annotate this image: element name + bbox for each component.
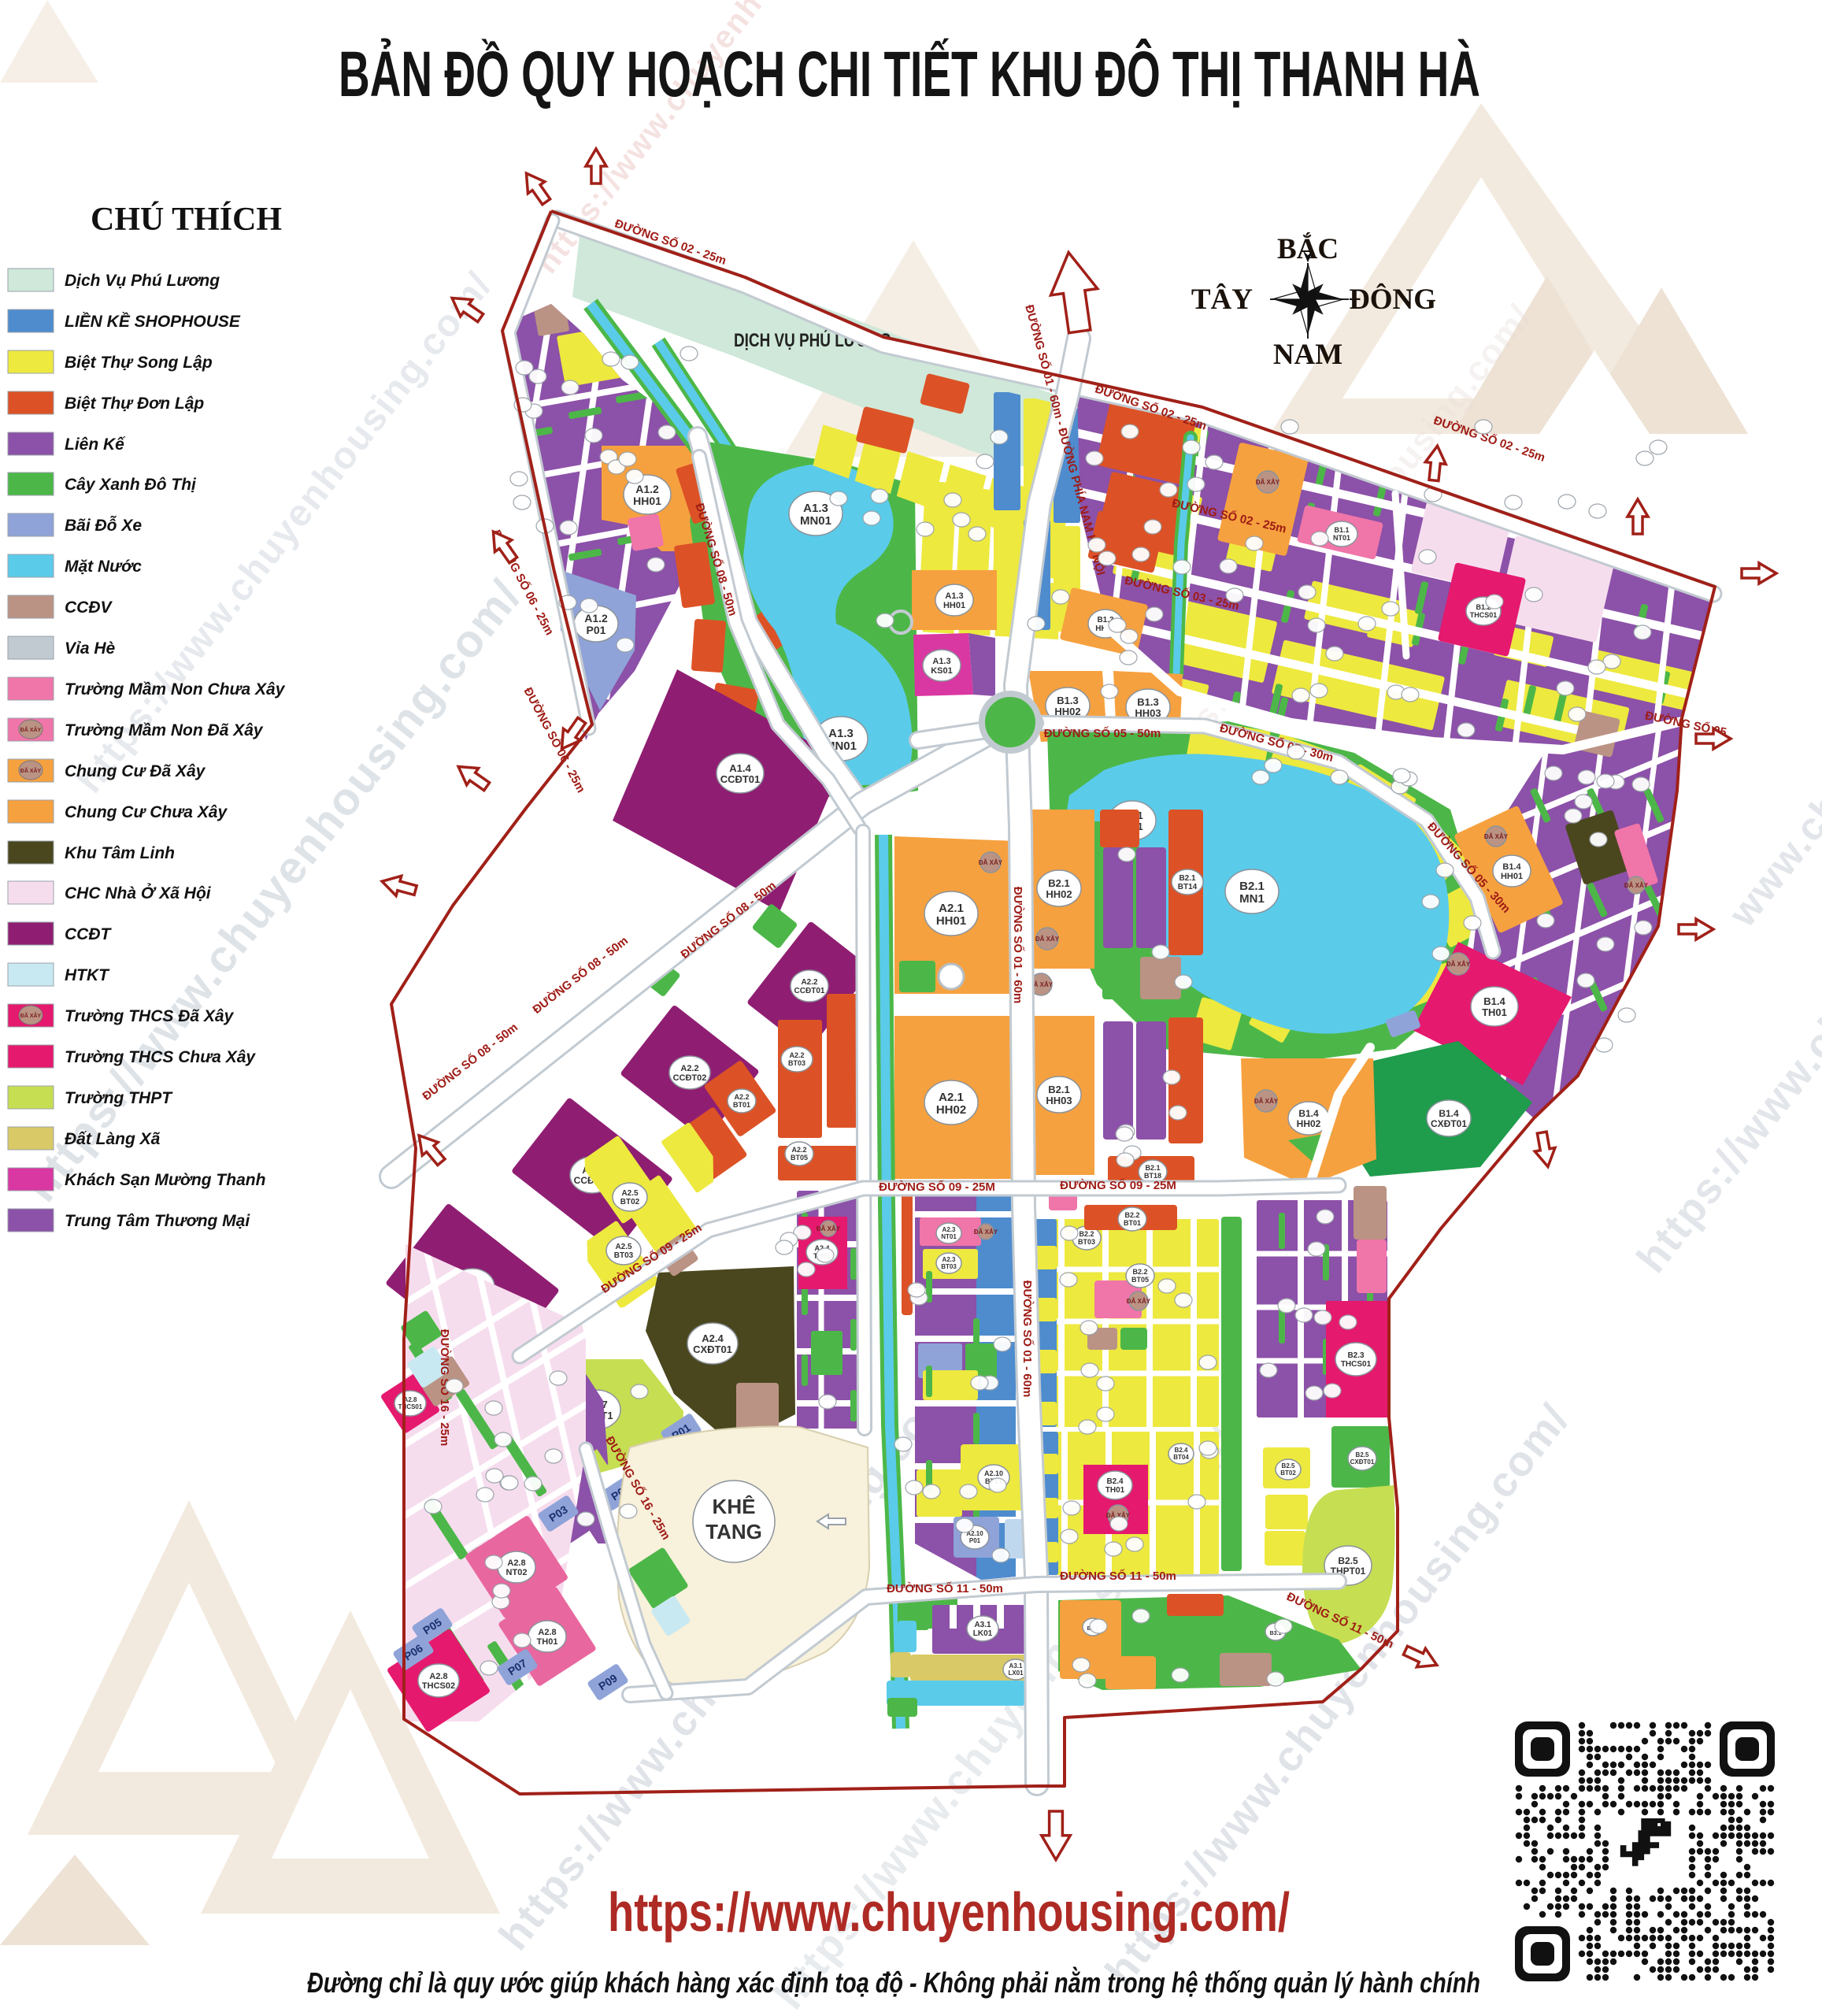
svg-text:A2.8: A2.8 — [538, 1628, 556, 1637]
svg-text:HTKT: HTKT — [65, 966, 110, 984]
svg-text:HH01: HH01 — [633, 495, 661, 507]
svg-text:B2.1: B2.1 — [1048, 877, 1069, 889]
svg-text:TH01: TH01 — [1482, 1006, 1507, 1018]
svg-text:THCS01: THCS01 — [398, 1403, 423, 1410]
svg-text:B1.3: B1.3 — [1137, 696, 1158, 708]
svg-text:B2.5: B2.5 — [1338, 1555, 1358, 1566]
svg-text:BT05: BT05 — [791, 1154, 808, 1162]
svg-text:TH01: TH01 — [1105, 1486, 1125, 1495]
svg-text:Chung Cư Chưa Xây: Chung Cư Chưa Xây — [65, 803, 228, 821]
svg-text:Trường THCS Đã Xây: Trường THCS Đã Xây — [65, 1007, 235, 1025]
svg-text:NT02: NT02 — [506, 1568, 528, 1577]
svg-text:KS01: KS01 — [931, 666, 953, 676]
svg-text:A1.3: A1.3 — [803, 502, 828, 515]
svg-text:A2.1: A2.1 — [939, 902, 964, 915]
svg-text:A2.5: A2.5 — [621, 1189, 639, 1198]
svg-text:BT03: BT03 — [788, 1059, 805, 1067]
svg-text:Cây Xanh Đô Thị: Cây Xanh Đô Thị — [65, 476, 197, 494]
svg-text:BT02: BT02 — [620, 1198, 640, 1206]
svg-text:ĐÃ XÂY: ĐÃ XÂY — [1035, 936, 1060, 943]
svg-text:A2.2: A2.2 — [680, 1064, 698, 1073]
svg-text:A1.3: A1.3 — [828, 727, 854, 740]
svg-text:ĐÃ XÂY: ĐÃ XÂY — [1446, 961, 1471, 968]
svg-text:HH01: HH01 — [1501, 872, 1523, 881]
svg-text:ĐÃ XÂY: ĐÃ XÂY — [1254, 1098, 1279, 1105]
svg-text:BT14: BT14 — [1178, 883, 1198, 891]
svg-text:CXĐT01: CXĐT01 — [1431, 1118, 1467, 1129]
svg-text:A1.4: A1.4 — [729, 762, 751, 774]
svg-text:CCĐT: CCĐT — [65, 925, 112, 943]
svg-text:B2.2: B2.2 — [1124, 1211, 1139, 1219]
svg-text:ĐÔNG: ĐÔNG — [1349, 282, 1436, 316]
svg-text:BT03: BT03 — [1078, 1238, 1095, 1246]
svg-text:TH01: TH01 — [537, 1637, 558, 1647]
svg-text:Trung Tâm Thương Mại: Trung Tâm Thương Mại — [65, 1212, 250, 1230]
svg-text:ĐÃ XÂY: ĐÃ XÂY — [1624, 882, 1649, 889]
svg-text:B2.5: B2.5 — [1356, 1451, 1369, 1458]
svg-text:B2.1: B2.1 — [1179, 874, 1196, 883]
svg-text:B2.4: B2.4 — [1106, 1477, 1124, 1486]
svg-text:HH03: HH03 — [1046, 1095, 1072, 1106]
svg-text:ĐƯỜNG SỐ 11 - 50m: ĐƯỜNG SỐ 11 - 50m — [1060, 1569, 1176, 1583]
svg-text:BT03: BT03 — [614, 1251, 634, 1260]
svg-text:NT01: NT01 — [1333, 534, 1350, 542]
svg-text:Khu Tâm Linh: Khu Tâm Linh — [65, 844, 175, 862]
svg-text:Mặt Nước: Mặt Nước — [65, 558, 142, 576]
svg-text:A2.5: A2.5 — [615, 1243, 632, 1251]
svg-text:Biệt Thự Đơn Lập: Biệt Thự Đơn Lập — [65, 395, 204, 413]
svg-text:Trường THCS Chưa Xây: Trường THCS Chưa Xây — [65, 1048, 256, 1066]
svg-text:BẮC: BẮC — [1277, 232, 1339, 265]
svg-text:CXĐT01: CXĐT01 — [693, 1343, 732, 1355]
svg-text:CCĐT01: CCĐT01 — [720, 773, 761, 785]
svg-text:A1.3: A1.3 — [945, 591, 963, 601]
svg-text:Liên Kế: Liên Kế — [65, 435, 126, 454]
svg-text:ĐÃ XÂY: ĐÃ XÂY — [1484, 833, 1509, 840]
svg-text:CCĐT01: CCĐT01 — [794, 987, 825, 995]
svg-text:ĐƯỜNG SỐ 09 - 25M: ĐƯỜNG SỐ 09 - 25M — [1060, 1178, 1176, 1192]
svg-text:THCS02: THCS02 — [422, 1681, 455, 1691]
svg-text:Trường Mầm Non Đã Xây: Trường Mầm Non Đã Xây — [65, 721, 264, 739]
svg-text:HH02: HH02 — [1046, 888, 1072, 900]
svg-text:https://www.chuyenhousing.com/: https://www.chuyenhousing.com/ — [608, 1881, 1290, 1943]
svg-text:B1.1: B1.1 — [1334, 526, 1349, 534]
svg-text:A2.8: A2.8 — [404, 1396, 417, 1403]
svg-text:CXĐT01: CXĐT01 — [1350, 1458, 1375, 1466]
svg-text:A2.1: A2.1 — [939, 1091, 964, 1104]
svg-text:BẢN ĐỒ QUY HOẠCH CHI TIẾT KHU: BẢN ĐỒ QUY HOẠCH CHI TIẾT KHU ĐÔ THỊ THA… — [339, 39, 1480, 110]
svg-text:Vỉa Hè: Vỉa Hè — [65, 639, 116, 658]
svg-text:Khách Sạn Mường Thanh: Khách Sạn Mường Thanh — [65, 1171, 265, 1189]
svg-text:LIỀN KỀ SHOPHOUSE: LIỀN KỀ SHOPHOUSE — [65, 313, 241, 331]
svg-text:A3.1: A3.1 — [974, 1621, 991, 1629]
svg-text:BT01: BT01 — [1124, 1219, 1141, 1227]
svg-text:KHÊ: KHÊ — [713, 1495, 756, 1518]
svg-text:Đất Làng Xã: Đất Làng Xã — [65, 1130, 161, 1148]
svg-text:CHC Nhà Ở Xã Hội: CHC Nhà Ở Xã Hội — [65, 884, 212, 902]
svg-text:Đường chỉ là quy ước giúp khác: Đường chỉ là quy ước giúp khách hàng xác… — [307, 1966, 1480, 1999]
svg-text:CCĐV: CCĐV — [65, 598, 113, 617]
svg-text:HH01: HH01 — [936, 914, 966, 928]
svg-text:A2.3: A2.3 — [942, 1226, 956, 1233]
svg-text:HH02: HH02 — [936, 1103, 966, 1117]
svg-text:Trường Mầm Non Chưa Xây: Trường Mầm Non Chưa Xây — [65, 680, 286, 699]
svg-text:BT01: BT01 — [733, 1101, 750, 1109]
svg-text:A1.2: A1.2 — [635, 483, 659, 495]
svg-text:B2.5: B2.5 — [1282, 1462, 1295, 1469]
svg-text:P01: P01 — [969, 1537, 981, 1544]
svg-text:A2.8: A2.8 — [507, 1558, 525, 1568]
svg-text:A2.2: A2.2 — [789, 1051, 804, 1059]
svg-text:Biệt Thự Song Lập: Biệt Thự Song Lập — [65, 354, 213, 372]
svg-text:ĐƯỜNG SỐ 01 - 60m: ĐƯỜNG SỐ 01 - 60m — [1020, 1280, 1035, 1398]
svg-text:BT04: BT04 — [1173, 1454, 1189, 1461]
svg-text:ĐÃ XÂY: ĐÃ XÂY — [1127, 1298, 1151, 1305]
svg-text:THCS01: THCS01 — [1341, 1360, 1372, 1369]
svg-text:ĐƯỜNG SỐ 01 - 60m: ĐƯỜNG SỐ 01 - 60m — [1011, 887, 1025, 1004]
svg-text:CCĐT02: CCĐT02 — [673, 1073, 707, 1083]
svg-text:B2.2: B2.2 — [1132, 1268, 1147, 1276]
svg-text:A1.3: A1.3 — [932, 657, 950, 666]
svg-text:HH01: HH01 — [943, 601, 965, 610]
svg-text:A2.2: A2.2 — [801, 978, 818, 987]
svg-text:A2.10: A2.10 — [984, 1469, 1003, 1477]
svg-text:ĐÃ XÂY: ĐÃ XÂY — [20, 726, 42, 733]
svg-text:B1.4: B1.4 — [1298, 1108, 1319, 1119]
svg-text:B1.4: B1.4 — [1439, 1108, 1459, 1119]
svg-text:BT02: BT02 — [1280, 1469, 1296, 1477]
svg-text:ĐƯỜNG SỐ 05 - 50m: ĐƯỜNG SỐ 05 - 50m — [1044, 726, 1161, 740]
svg-text:A1.2: A1.2 — [584, 612, 608, 624]
svg-text:ĐÃ XÂY: ĐÃ XÂY — [974, 1228, 998, 1236]
svg-text:BT05: BT05 — [1131, 1276, 1149, 1284]
svg-text:Bãi Đỗ Xe: Bãi Đỗ Xe — [65, 517, 142, 535]
svg-text:B2.4: B2.4 — [1175, 1447, 1188, 1454]
svg-text:Chung Cư Đã Xây: Chung Cư Đã Xây — [65, 762, 206, 780]
svg-text:ĐÃ XÂY: ĐÃ XÂY — [979, 859, 1003, 866]
svg-text:P01: P01 — [587, 624, 606, 636]
svg-text:ĐÃ XÂY: ĐÃ XÂY — [817, 1225, 841, 1232]
svg-text:B2.1: B2.1 — [1048, 1084, 1069, 1095]
svg-text:A2.2: A2.2 — [791, 1146, 806, 1154]
svg-text:B1.3: B1.3 — [1057, 695, 1078, 706]
svg-text:BT03: BT03 — [941, 1263, 957, 1270]
svg-text:HH02: HH02 — [1297, 1118, 1321, 1129]
svg-text:B2.3: B2.3 — [1347, 1351, 1365, 1360]
svg-text:MN1: MN1 — [1239, 892, 1265, 906]
svg-text:B2.1: B2.1 — [1145, 1164, 1160, 1172]
svg-text:A2.4: A2.4 — [702, 1332, 724, 1344]
svg-text:B1.4: B1.4 — [1483, 995, 1505, 1007]
svg-text:CHÚ THÍCH: CHÚ THÍCH — [91, 201, 282, 238]
svg-text:ĐÃ XÂY: ĐÃ XÂY — [1256, 479, 1280, 486]
svg-text:A3.1: A3.1 — [1009, 1662, 1023, 1669]
svg-text:B2.2: B2.2 — [1079, 1230, 1094, 1238]
svg-text:LK01: LK01 — [973, 1629, 993, 1638]
svg-text:MN01: MN01 — [800, 514, 831, 528]
svg-text:LX01: LX01 — [1008, 1669, 1024, 1677]
svg-text:ĐƯỜNG SỐ 09 - 25M: ĐƯỜNG SỐ 09 - 25M — [879, 1180, 995, 1194]
svg-text:TÂY: TÂY — [1191, 283, 1253, 316]
svg-text:NAM: NAM — [1273, 339, 1342, 371]
svg-text:B1.4: B1.4 — [1502, 862, 1521, 872]
svg-text:THCS01: THCS01 — [1470, 611, 1498, 619]
svg-text:A2.3: A2.3 — [942, 1256, 956, 1263]
svg-text:A2.2: A2.2 — [734, 1093, 749, 1101]
svg-text:ĐÃ XÂY: ĐÃ XÂY — [20, 767, 42, 774]
svg-text:ĐƯỜNG SỐ 11 - 50m: ĐƯỜNG SỐ 11 - 50m — [887, 1581, 1003, 1595]
svg-text:Dịch Vụ Phú Lương: Dịch Vụ Phú Lương — [65, 272, 220, 290]
svg-text:ĐÃ XÂY: ĐÃ XÂY — [20, 1012, 42, 1019]
svg-text:A2.8: A2.8 — [429, 1672, 447, 1681]
svg-text:NT01: NT01 — [941, 1233, 957, 1240]
svg-text:Trường THPT: Trường THPT — [65, 1089, 173, 1107]
svg-text:TANG: TANG — [705, 1520, 762, 1543]
svg-text:B2.1: B2.1 — [1239, 880, 1265, 893]
